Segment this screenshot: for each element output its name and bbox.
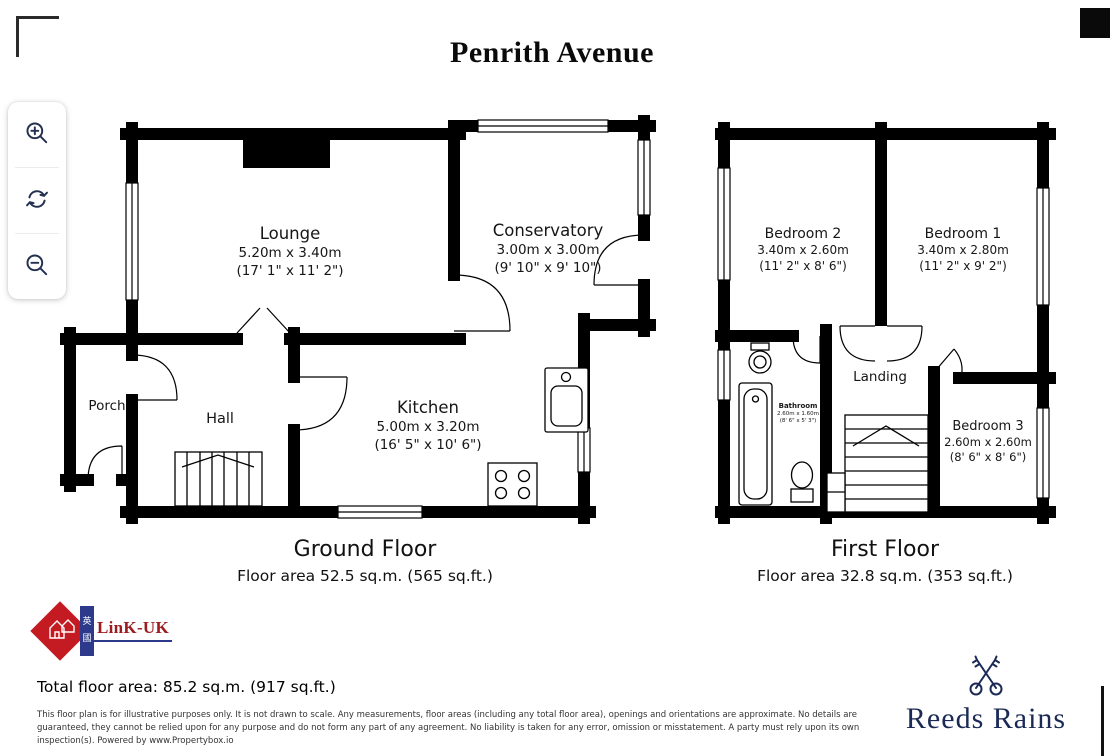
page-title: Penrith Avenue xyxy=(0,36,1104,70)
first-floor-caption: First Floor Floor area 32.8 sq.m. (353 s… xyxy=(685,537,1085,585)
zoom-out-button[interactable] xyxy=(8,234,66,299)
room-label-bathroom: Bathroom 2.60m x 1.60m (8' 6" x 5' 3") xyxy=(772,402,824,425)
ground-floor-caption: Ground Floor Floor area 52.5 sq.m. (565 … xyxy=(165,537,565,585)
link-uk-underline xyxy=(94,640,172,642)
room-label-hall: Hall xyxy=(190,410,250,429)
room-label-kitchen: Kitchen 5.00m x 3.20m (16' 5" x 10' 6") xyxy=(348,397,508,454)
basin xyxy=(749,343,771,373)
stairs xyxy=(175,452,262,506)
toilet xyxy=(791,462,813,502)
first-floor-walls xyxy=(715,115,1060,530)
first-floor-plan: Bedroom 2 3.40m x 2.60m (11' 2" x 8' 6")… xyxy=(715,115,1060,530)
room-label-bedroom-1: Bedroom 1 3.40m x 2.80m (11' 2" x 9' 2") xyxy=(893,225,1033,275)
kitchen-sink xyxy=(545,368,588,432)
rotate-icon xyxy=(24,186,50,215)
stove xyxy=(488,463,537,506)
total-floor-area: Total floor area: 85.2 sq.m. (917 sq.ft.… xyxy=(37,678,336,696)
chimney-breast xyxy=(243,140,330,168)
link-uk-cn-badge: 英 國 xyxy=(80,606,94,656)
crossed-keys-icon xyxy=(962,650,1010,702)
room-label-bedroom-2: Bedroom 2 3.40m x 2.60m (11' 2" x 8' 6") xyxy=(733,225,873,275)
zoom-out-icon xyxy=(24,252,50,281)
page-corner-mark-bottomright xyxy=(1101,686,1104,756)
ground-floor-walls xyxy=(60,115,660,530)
room-label-landing: Landing xyxy=(840,369,920,387)
bathtub xyxy=(739,383,772,505)
disclaimer-text: This floor plan is for illustrative purp… xyxy=(37,709,872,747)
room-label-conservatory: Conservatory 3.00m x 3.00m (9' 10" x 9' … xyxy=(468,220,628,277)
link-uk-houses-icon xyxy=(40,611,80,655)
room-label-porch: Porch xyxy=(77,398,137,416)
zoom-in-icon xyxy=(24,120,50,149)
ground-floor-plan: Lounge 5.20m x 3.40m (17' 1" x 11' 2") C… xyxy=(60,115,660,530)
zoom-in-button[interactable] xyxy=(8,102,66,167)
stairs xyxy=(827,415,928,512)
reeds-rains-wordmark: Reeds Rains xyxy=(886,702,1086,736)
page-corner-square-topright xyxy=(1080,8,1110,38)
link-uk-logo: 英 國 LinK-UK xyxy=(33,598,183,668)
plan-toolbar xyxy=(8,102,66,299)
room-label-bedroom-3: Bedroom 3 2.60m x 2.60m (8' 6" x 8' 6") xyxy=(918,418,1058,466)
link-uk-wordmark: LinK-UK xyxy=(97,618,169,638)
rotate-button[interactable] xyxy=(8,168,66,233)
room-label-lounge: Lounge 5.20m x 3.40m (17' 1" x 11' 2") xyxy=(210,223,370,280)
